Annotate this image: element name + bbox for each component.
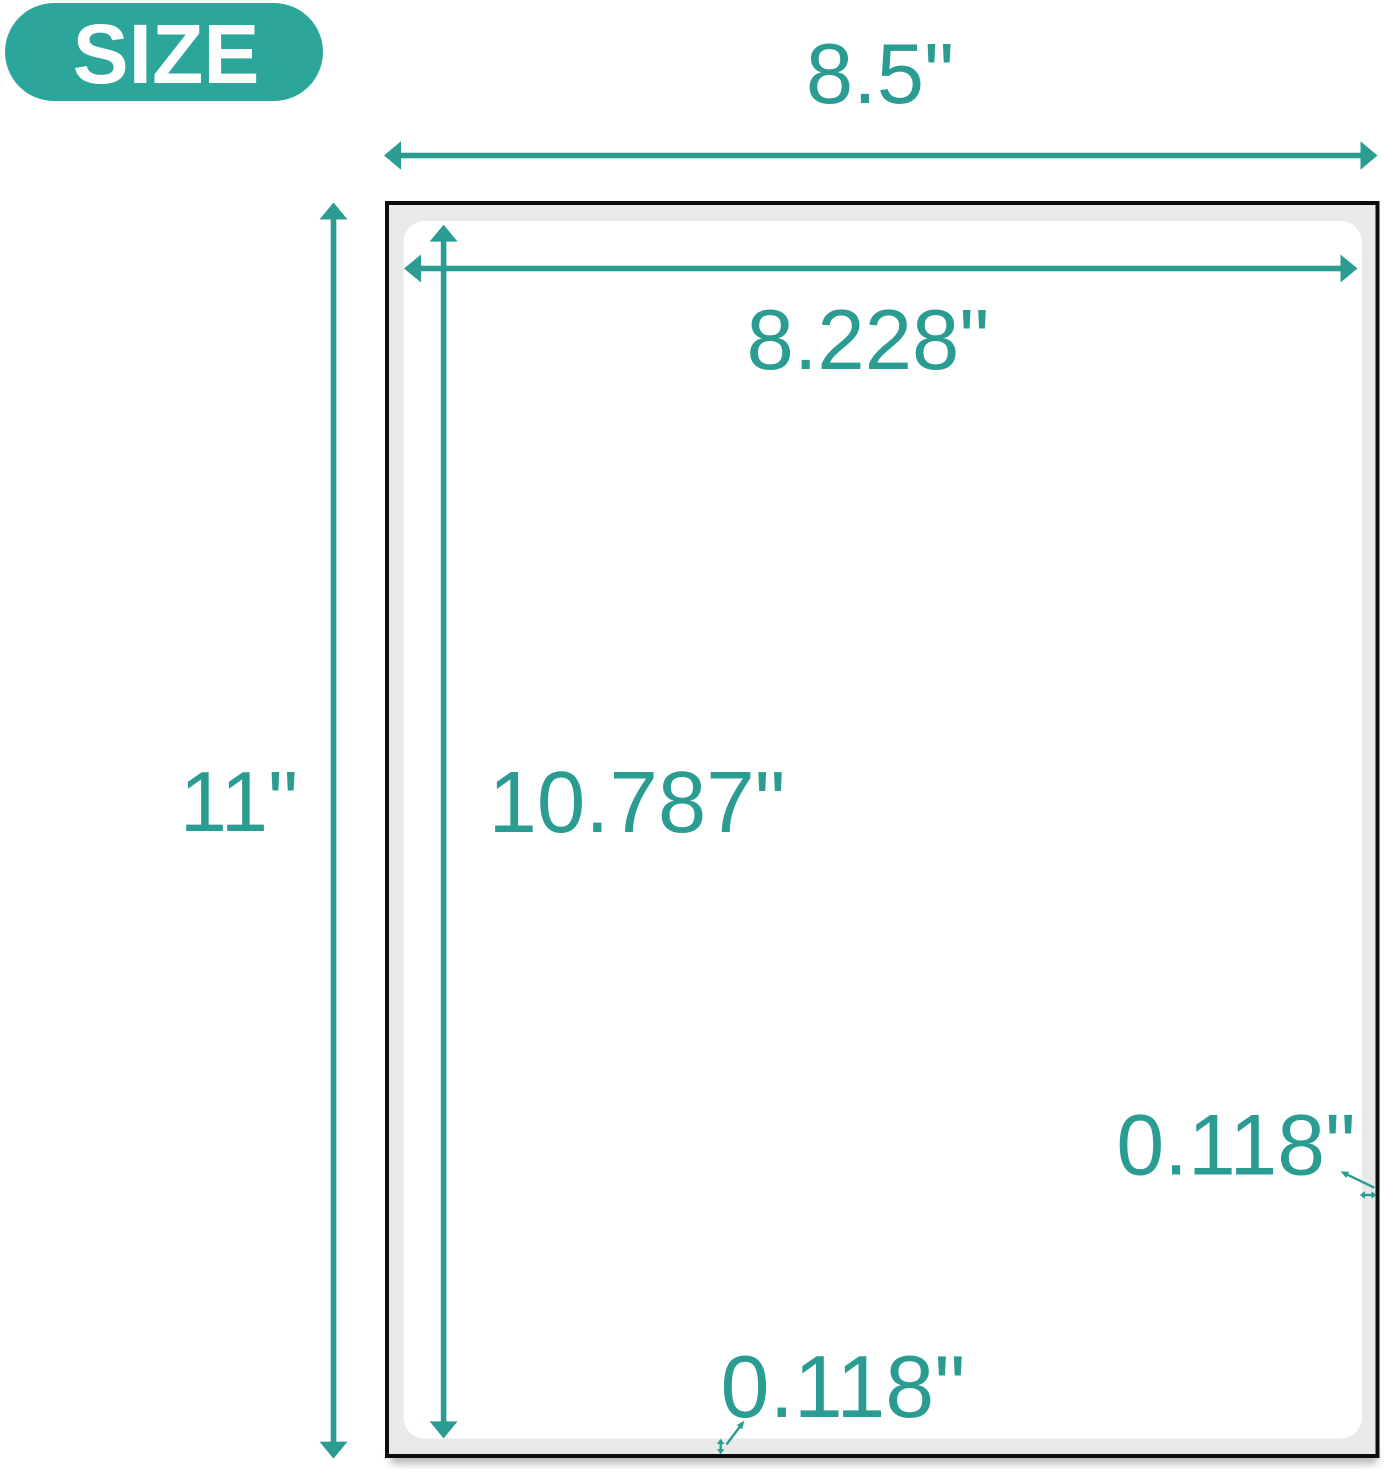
svg-text:10.787": 10.787": [489, 754, 786, 851]
svg-text:11": 11": [180, 755, 298, 850]
svg-text:0.118": 0.118": [721, 1337, 966, 1436]
svg-text:8.228": 8.228": [747, 293, 990, 388]
svg-text:8.5": 8.5": [806, 27, 954, 122]
svg-text:SIZE: SIZE: [73, 7, 260, 101]
svg-text:0.118": 0.118": [1116, 1098, 1355, 1194]
